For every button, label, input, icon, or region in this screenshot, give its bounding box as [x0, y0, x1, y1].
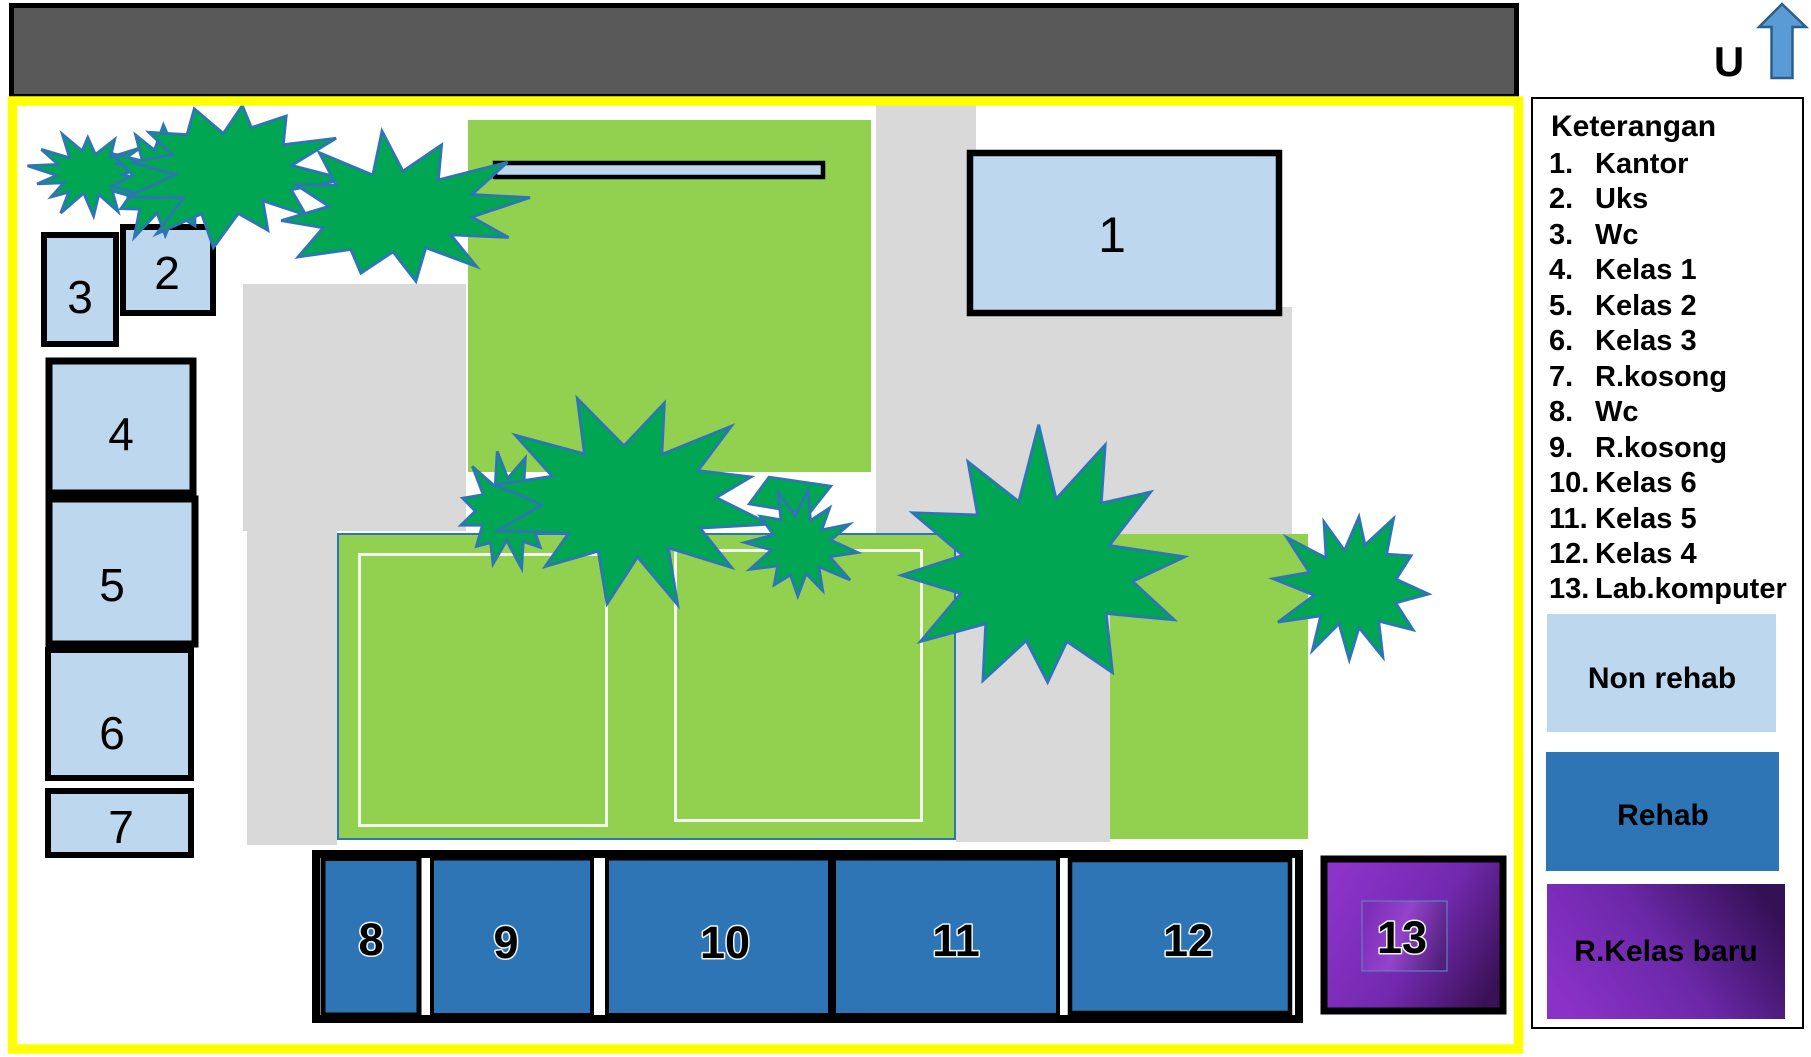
svg-text:5.: 5.: [1549, 290, 1573, 322]
svg-text:Kelas 6: Kelas 6: [1595, 467, 1697, 499]
svg-text:10.: 10.: [1549, 467, 1589, 499]
svg-text:6.: 6.: [1549, 325, 1573, 357]
svg-text:12.: 12.: [1549, 538, 1589, 570]
svg-text:U: U: [1714, 38, 1744, 85]
svg-text:11.: 11.: [1549, 503, 1588, 535]
svg-text:9: 9: [493, 917, 518, 968]
svg-text:R.kosong: R.kosong: [1595, 361, 1727, 393]
svg-text:9.: 9.: [1549, 432, 1573, 464]
svg-text:3: 3: [67, 271, 93, 323]
svg-text:8.: 8.: [1549, 396, 1573, 428]
svg-text:Kelas 1: Kelas 1: [1595, 254, 1697, 286]
svg-text:8: 8: [358, 914, 383, 965]
svg-text:Kelas 3: Kelas 3: [1595, 325, 1697, 357]
svg-text:6: 6: [99, 707, 125, 759]
svg-text:13: 13: [1377, 912, 1427, 963]
svg-text:Wc: Wc: [1595, 219, 1639, 251]
svg-text:Kelas 5: Kelas 5: [1595, 503, 1697, 535]
svg-text:Keterangan: Keterangan: [1551, 110, 1716, 143]
svg-text:3.: 3.: [1549, 219, 1573, 251]
svg-text:Lab.komputer: Lab.komputer: [1595, 573, 1787, 605]
svg-text:13.: 13.: [1549, 573, 1589, 605]
svg-text:Kantor: Kantor: [1595, 148, 1688, 180]
svg-text:Uks: Uks: [1595, 183, 1648, 215]
svg-text:12: 12: [1163, 915, 1213, 966]
svg-text:10: 10: [700, 917, 750, 968]
svg-text:4: 4: [108, 408, 134, 460]
svg-text:7: 7: [108, 801, 134, 853]
svg-text:1.: 1.: [1549, 148, 1573, 180]
svg-text:1: 1: [1098, 207, 1126, 263]
svg-text:Rehab: Rehab: [1617, 799, 1709, 832]
svg-text:Kelas 2: Kelas 2: [1595, 290, 1697, 322]
svg-text:11: 11: [932, 915, 980, 966]
svg-text:Non rehab: Non rehab: [1588, 662, 1736, 695]
svg-text:5: 5: [99, 559, 125, 611]
svg-text:R.Kelas baru: R.Kelas baru: [1574, 935, 1757, 968]
svg-text:2.: 2.: [1549, 183, 1573, 215]
svg-text:7.: 7.: [1549, 361, 1573, 393]
svg-text:2: 2: [154, 247, 180, 299]
svg-text:R.kosong: R.kosong: [1595, 432, 1727, 464]
svg-text:4.: 4.: [1549, 254, 1573, 286]
svg-text:Kelas 4: Kelas 4: [1595, 538, 1697, 570]
svg-text:Wc: Wc: [1595, 396, 1639, 428]
